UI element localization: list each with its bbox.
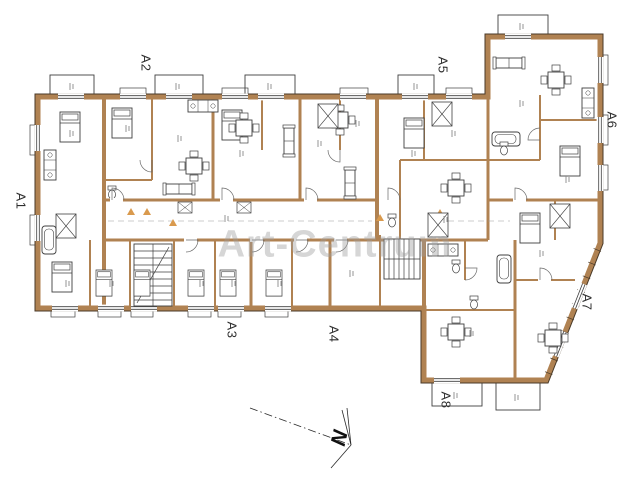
unit-label-a4: A4 [327, 326, 342, 343]
watermark-text: Art-Centrum [218, 224, 453, 267]
unit-label-a5: A5 [436, 57, 451, 74]
unit-label-a8: A8 [439, 392, 454, 409]
floor-plan-page: A1 A2 A3 A4 A5 A6 A7 A8 Art-Centrum N [0, 0, 640, 480]
unit-label-a2: A2 [139, 55, 154, 72]
unit-label-a1: A1 [14, 193, 29, 210]
unit-label-a7: A7 [580, 294, 595, 311]
unit-label-a3: A3 [225, 322, 240, 339]
unit-label-a6: A6 [605, 112, 620, 129]
